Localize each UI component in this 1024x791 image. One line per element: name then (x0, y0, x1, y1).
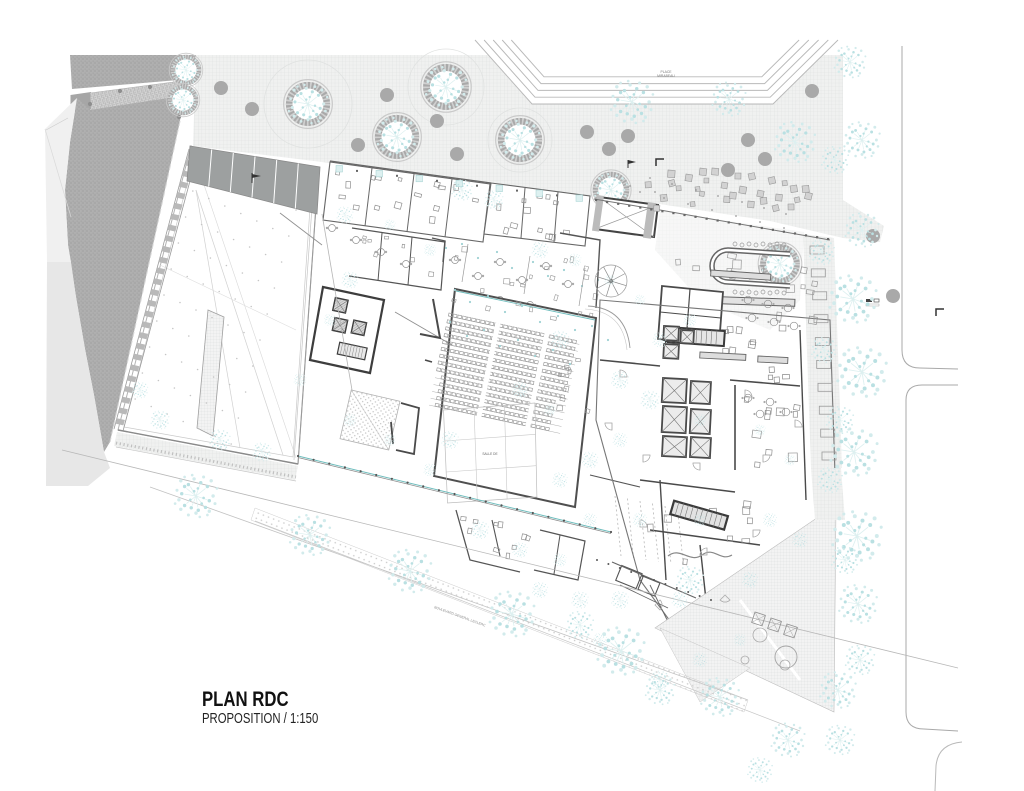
svg-text:PLAN RDC: PLAN RDC (202, 688, 289, 711)
svg-text:MIRABEAU: MIRABEAU (657, 74, 675, 78)
svg-text:PROPOSITION / 1:150: PROPOSITION / 1:150 (202, 710, 318, 727)
svg-text:SALLE DE: SALLE DE (482, 452, 497, 456)
